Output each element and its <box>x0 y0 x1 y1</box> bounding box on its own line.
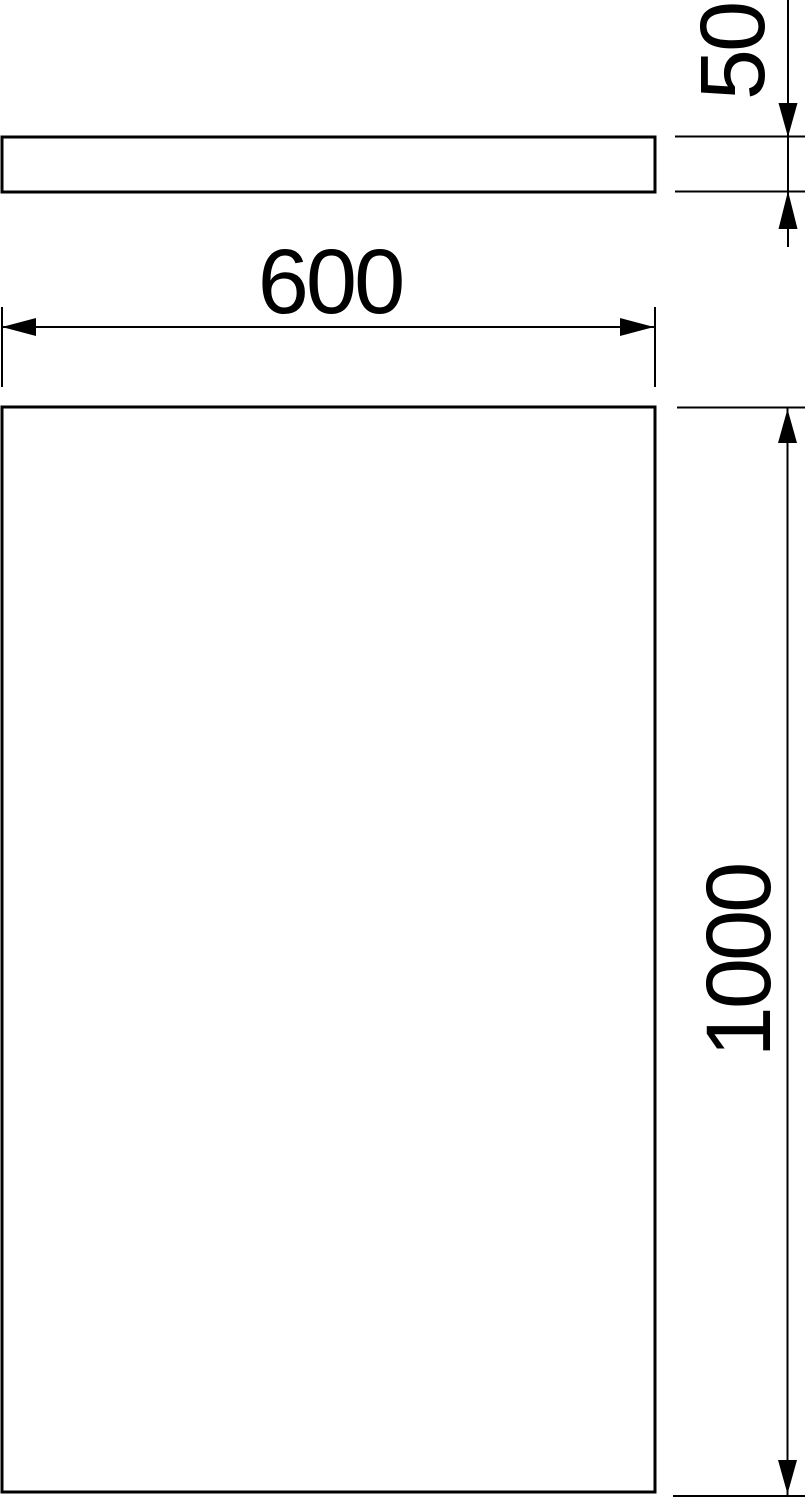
arrow-down-icon <box>778 1460 797 1494</box>
dimension-height: 1000 <box>673 408 805 1497</box>
arrow-left-icon <box>2 318 36 336</box>
arrow-up-icon <box>778 409 797 443</box>
height-dimension-label: 1000 <box>688 865 790 1058</box>
technical-drawing: 50 600 1000 <box>0 0 805 1500</box>
dimension-thickness: 50 <box>675 0 805 247</box>
panel-front-view-outline <box>2 407 655 1492</box>
dimension-width: 600 <box>2 231 655 387</box>
arrow-up-icon <box>779 191 798 229</box>
panel-top-view-outline <box>2 137 655 192</box>
width-dimension-label: 600 <box>258 231 403 333</box>
arrow-down-icon <box>779 103 798 137</box>
thickness-dimension-label: 50 <box>682 4 784 100</box>
drawing-canvas: 50 600 1000 <box>0 0 805 1500</box>
arrow-right-icon <box>620 318 654 336</box>
